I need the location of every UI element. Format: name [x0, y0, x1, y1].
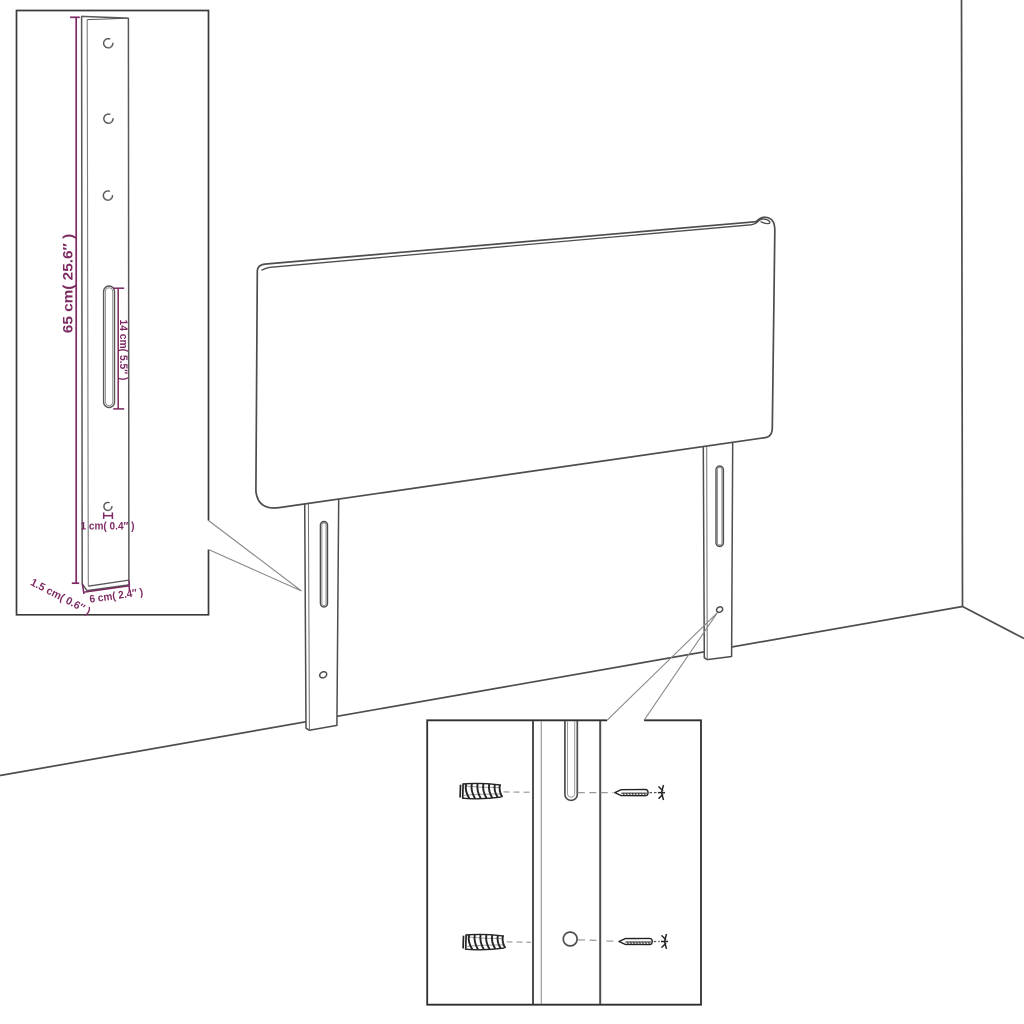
svg-text:1 cm( 0.4″ ): 1 cm( 0.4″ ) — [81, 520, 135, 532]
svg-text:14 cm( 5.5″ ): 14 cm( 5.5″ ) — [117, 320, 129, 381]
svg-text:65 cm( 25.6″ ): 65 cm( 25.6″ ) — [60, 233, 76, 333]
